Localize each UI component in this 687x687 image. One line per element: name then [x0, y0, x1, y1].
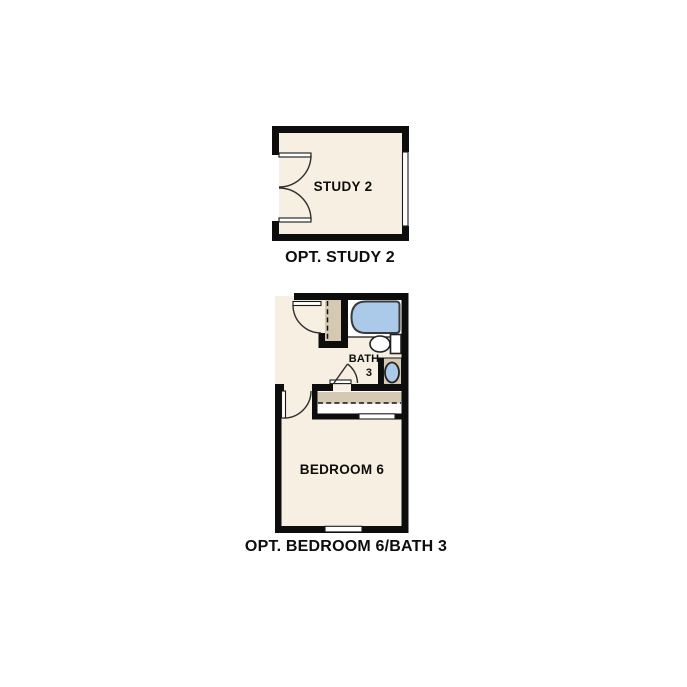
- bath-label-line1: BATH: [349, 353, 380, 365]
- study-caption: OPT. STUDY 2: [285, 249, 395, 266]
- wall-segment: [341, 293, 348, 348]
- toilet-tank: [391, 335, 402, 354]
- linen-door-leaf: [293, 302, 321, 306]
- wall-segment: [312, 384, 333, 391]
- bedroom-bath-plan: BATH 3 BEDROOM 6 OPT. BEDROOM 6/BATH 3: [245, 293, 447, 555]
- wall-segment: [402, 293, 409, 533]
- wall-segment: [319, 333, 326, 345]
- bathtub: [352, 302, 400, 334]
- toilet: [370, 335, 401, 354]
- wall-segment: [275, 384, 284, 391]
- closet-shelf: [318, 392, 402, 404]
- bedroom-closet: [318, 391, 402, 414]
- wall-segment: [272, 221, 279, 241]
- wall-segment: [402, 226, 409, 241]
- bath-door-threshold: [330, 380, 351, 384]
- wall-segment: [395, 414, 409, 420]
- bath-label-line2: 3: [366, 367, 372, 379]
- bedroom-room-label: BEDROOM 6: [300, 462, 385, 477]
- wall-segment: [312, 414, 359, 420]
- study-plan: STUDY 2 OPT. STUDY 2: [272, 126, 409, 266]
- wall-segment: [351, 384, 409, 391]
- french-door-leaf-bottom: [279, 218, 311, 222]
- wall-segment: [272, 234, 409, 241]
- wall-segment: [402, 126, 409, 152]
- closet-opening: [359, 414, 395, 419]
- floor-plan-drawing: STUDY 2 OPT. STUDY 2: [0, 0, 687, 687]
- linen-closet: [325, 300, 341, 341]
- toilet-bowl: [370, 336, 390, 352]
- study-window: [403, 152, 409, 226]
- wall-segment: [294, 293, 409, 300]
- sink-basin: [385, 363, 399, 383]
- bedroom-door-leaf: [282, 391, 286, 418]
- bedroom-bath-caption: OPT. BEDROOM 6/BATH 3: [245, 538, 447, 555]
- wall-segment: [275, 384, 282, 533]
- study-room-label: STUDY 2: [314, 179, 373, 194]
- bedroom-window: [325, 526, 362, 532]
- french-door-leaf-top: [279, 153, 311, 157]
- floor-plan-page: STUDY 2 OPT. STUDY 2: [0, 0, 687, 687]
- wall-segment: [272, 126, 409, 133]
- wall-segment: [272, 126, 279, 155]
